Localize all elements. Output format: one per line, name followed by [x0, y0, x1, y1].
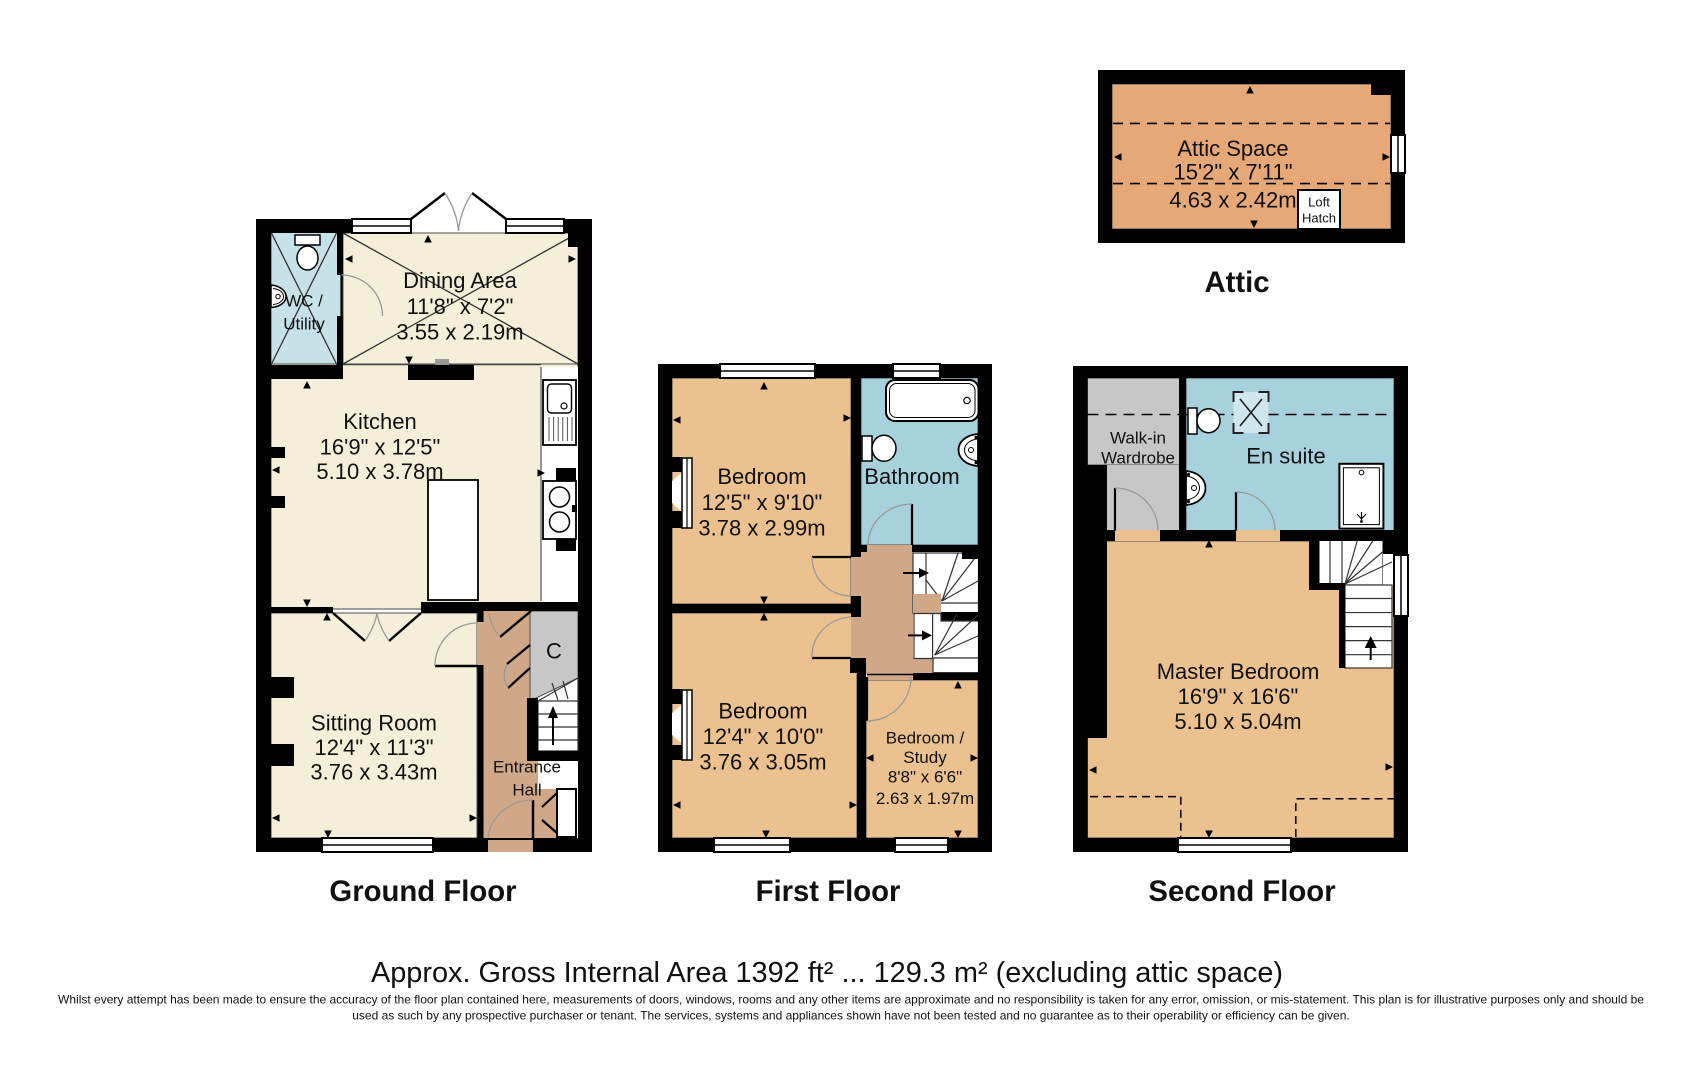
- svg-text:Bedroom /: Bedroom /: [886, 729, 965, 748]
- svg-text:15'2" x 7'11": 15'2" x 7'11": [1173, 160, 1292, 185]
- svg-text:Attic Space: Attic Space: [1177, 136, 1288, 161]
- svg-text:Walk-in: Walk-in: [1110, 428, 1166, 447]
- svg-text:4.63 x 2.42m: 4.63 x 2.42m: [1169, 188, 1296, 213]
- svg-text:11'8" x 7'2": 11'8" x 7'2": [407, 294, 514, 319]
- svg-text:Master Bedroom: Master Bedroom: [1157, 659, 1320, 684]
- svg-text:Approx. Gross Internal Area 13: Approx. Gross Internal Area 1392 ft² ...…: [371, 957, 1283, 989]
- svg-text:Bathroom: Bathroom: [864, 464, 959, 489]
- svg-text:En suite: En suite: [1246, 444, 1326, 469]
- svg-text:Whilst every attempt has been: Whilst every attempt has been made to en…: [58, 993, 1644, 1007]
- svg-text:Hatch: Hatch: [1302, 211, 1336, 226]
- svg-text:8'8" x 6'6": 8'8" x 6'6": [888, 767, 962, 786]
- svg-text:Wardrobe: Wardrobe: [1101, 448, 1175, 467]
- svg-text:3.55 x 2.19m: 3.55 x 2.19m: [396, 320, 523, 345]
- svg-text:First Floor: First Floor: [756, 875, 901, 908]
- svg-text:Utility: Utility: [283, 314, 325, 333]
- svg-text:C: C: [546, 639, 562, 664]
- svg-text:3.78 x 2.99m: 3.78 x 2.99m: [698, 515, 825, 540]
- svg-text:WC /: WC /: [285, 291, 323, 310]
- svg-text:12'4" x 11'3": 12'4" x 11'3": [314, 735, 433, 760]
- svg-text:Second Floor: Second Floor: [1148, 875, 1335, 908]
- svg-text:5.10 x 3.78m: 5.10 x 3.78m: [316, 459, 443, 484]
- svg-text:16'9" x 12'5": 16'9" x 12'5": [320, 435, 441, 460]
- svg-text:Ground Floor: Ground Floor: [329, 875, 516, 908]
- svg-text:Loft: Loft: [1308, 195, 1330, 210]
- svg-text:5.10 x 5.04m: 5.10 x 5.04m: [1174, 709, 1301, 734]
- svg-text:Sitting Room: Sitting Room: [311, 711, 437, 736]
- svg-text:3.76 x 3.05m: 3.76 x 3.05m: [699, 750, 826, 775]
- svg-text:Bedroom: Bedroom: [718, 699, 807, 724]
- svg-text:2.63 x 1.97m: 2.63 x 1.97m: [876, 789, 974, 808]
- svg-text:used as such by any prospectiv: used as such by any prospective purchase…: [352, 1009, 1350, 1023]
- svg-text:12'4" x 10'0": 12'4" x 10'0": [703, 724, 824, 749]
- svg-text:Study: Study: [903, 748, 947, 767]
- svg-text:16'9" x 16'6": 16'9" x 16'6": [1178, 684, 1299, 709]
- svg-text:Bedroom: Bedroom: [717, 464, 806, 489]
- svg-text:Attic: Attic: [1204, 266, 1269, 299]
- svg-text:Entrance: Entrance: [493, 757, 561, 776]
- svg-text:Kitchen: Kitchen: [343, 409, 416, 434]
- svg-text:Hall: Hall: [512, 780, 541, 799]
- svg-text:3.76 x 3.43m: 3.76 x 3.43m: [310, 760, 437, 785]
- svg-text:12'5" x 9'10": 12'5" x 9'10": [702, 490, 823, 515]
- svg-text:Dining Area: Dining Area: [403, 268, 518, 293]
